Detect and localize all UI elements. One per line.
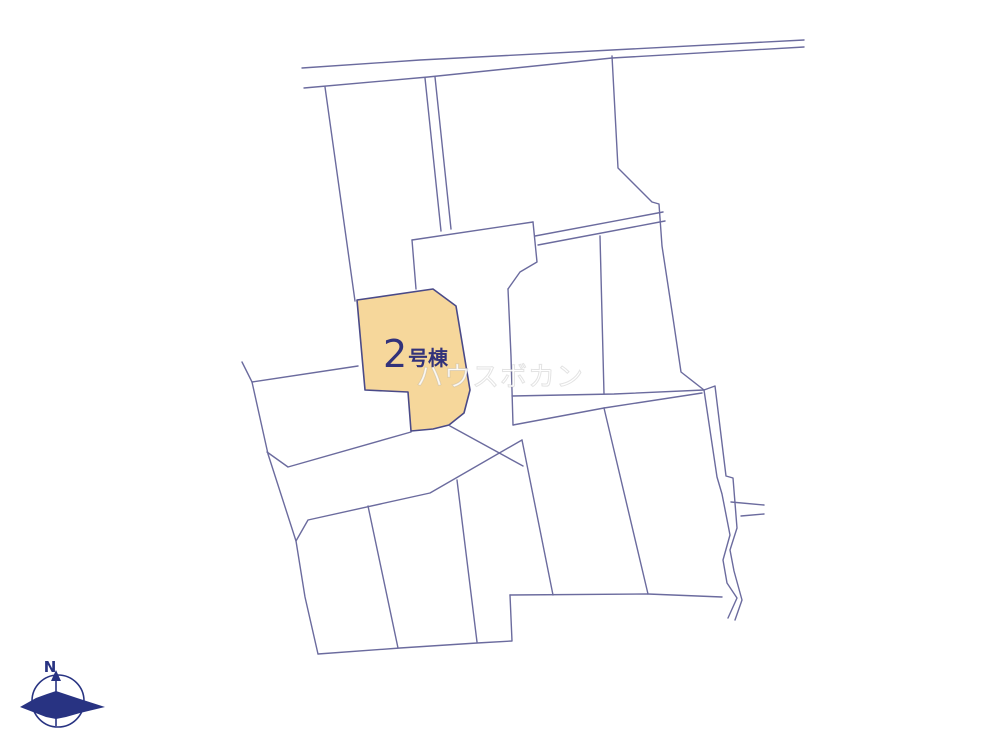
central-parcel-west-edge — [412, 240, 416, 289]
site-plan-page: 2 号棟 ハウスボカン N — [0, 0, 1000, 750]
watermark-text: ハウスボカン — [416, 362, 584, 393]
parcel-boundary-lines — [242, 40, 804, 654]
east-exit-road-lower-stub — [741, 514, 764, 516]
bottom-boundary-west-segment — [318, 595, 512, 654]
lower-right-parcel-top-edge — [604, 393, 702, 408]
west-boundary-line — [242, 362, 318, 654]
lower-road-north-line — [267, 432, 411, 467]
east-exit-road-upper-stub — [731, 502, 764, 505]
lower-right-parcel-west-edge — [604, 408, 648, 594]
bottom-parcel-divider-1 — [368, 506, 398, 648]
bottom-parcel-divider-3 — [522, 440, 553, 595]
bottom-parcel-divider-2 — [457, 480, 477, 642]
compass-north-label: N — [44, 658, 57, 676]
site-plan-map: 2 号棟 ハウスボカン N — [0, 0, 1000, 750]
flag-strip-west-line — [425, 78, 441, 231]
compass-icon: N — [20, 658, 105, 727]
east-narrow-road-west-line — [704, 390, 737, 618]
northwest-parcel-top-edge — [252, 366, 358, 382]
central-parcel-east-edge — [508, 289, 513, 425]
east-road-upper-line — [535, 212, 663, 236]
central-parcel-northeast-corner — [508, 222, 537, 289]
right-parcel-west-edge — [600, 236, 604, 394]
parcel-label-number: 2 — [383, 332, 407, 376]
left-parcel-west-edge — [325, 87, 355, 301]
middle-road-connector-line — [513, 408, 604, 425]
east-road-lower-line — [538, 221, 665, 245]
flag-strip-east-line — [435, 77, 451, 229]
central-parcel-top-edge — [412, 222, 533, 240]
bottom-boundary-east-segment — [510, 594, 722, 597]
